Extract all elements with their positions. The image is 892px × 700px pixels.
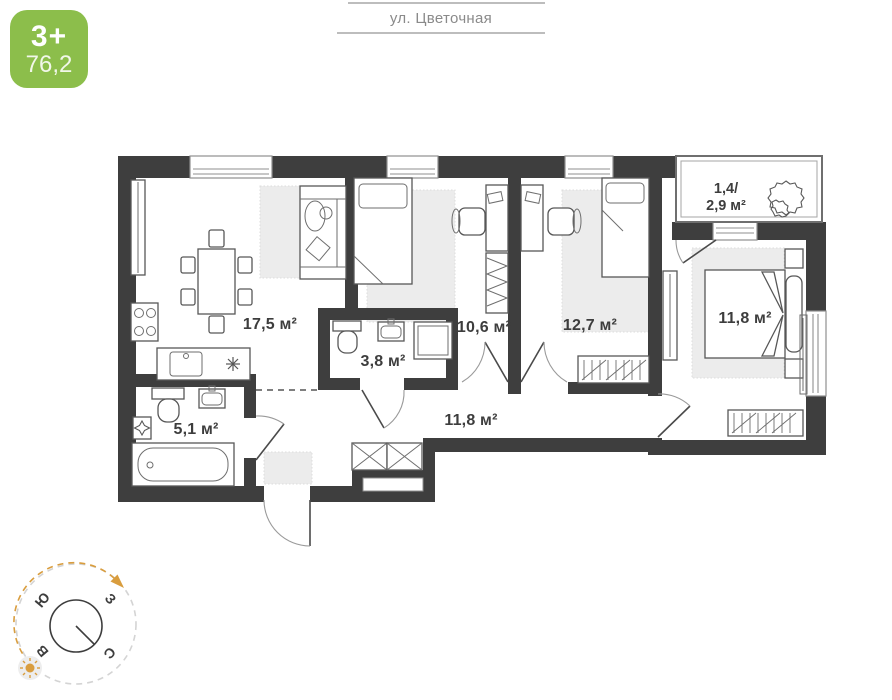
hob-asterisk-icon [226,357,240,371]
wardrobe [578,356,649,383]
door-bathroom-small [362,390,404,428]
rug-kitchen [260,186,300,278]
label-bathroom-small: 3,8 м² [360,353,405,370]
desk-chair [452,185,508,251]
door-bedroom-middle [521,342,567,382]
wardrobe [728,410,803,436]
window-bedroom-middle [565,156,613,178]
entrance-doormat [264,452,312,484]
door-bedroom-master [658,394,690,437]
label-bedroom-small: 10,6 м² [457,319,511,336]
bedroom-master-furniture [663,249,807,436]
dining-table-set [181,230,252,333]
label-hallway: 11,8 м² [444,412,497,429]
single-bed [354,178,412,284]
shoe-bench [352,443,422,470]
compass-west: З [102,590,120,607]
window-bedroom-small [387,156,438,178]
window-bedroom-master [806,311,826,396]
single-bed [602,178,649,277]
hallway-cabinet-front [363,478,423,491]
kitchen-living-furniture [131,180,346,380]
label-kitchen-living: 17,5 м² [243,316,297,333]
shower [414,322,452,359]
entrance-door [264,500,310,546]
nightstand [785,249,803,268]
bathtub [132,443,234,486]
label-bedroom-master: 11,8 м² [718,310,771,327]
hallway-furniture [352,443,422,470]
floor-plan-svg: 17,5 м² 10,6 м² 12,7 м² 11,8 м² 3,8 м² 5… [0,0,892,700]
sofa [300,186,346,279]
door-bedroom-small [462,342,508,382]
balcony-door-unit [713,222,757,240]
label-balcony-line2: 2,9 м² [706,198,746,214]
stove [131,303,158,341]
window-kitchen [190,156,272,178]
compass-south: Ю [31,589,53,610]
kitchen-counter [157,348,250,380]
balcony-glazing [676,156,822,222]
label-balcony-line1: 1,4/ [714,181,738,197]
shelving [486,253,508,313]
label-bathroom-large: 5,1 м² [173,421,218,438]
floor-plan-page: 3+ 76,2 ул. Цветочная [0,0,892,700]
label-bedroom-middle: 12,7 м² [563,317,617,334]
washbasin [378,319,404,341]
washing-machine [133,417,151,439]
toilet [333,321,361,353]
compass: Ю З В С [14,563,136,684]
toilet [152,388,184,422]
compass-north: С [100,644,119,662]
washbasin [199,386,225,408]
